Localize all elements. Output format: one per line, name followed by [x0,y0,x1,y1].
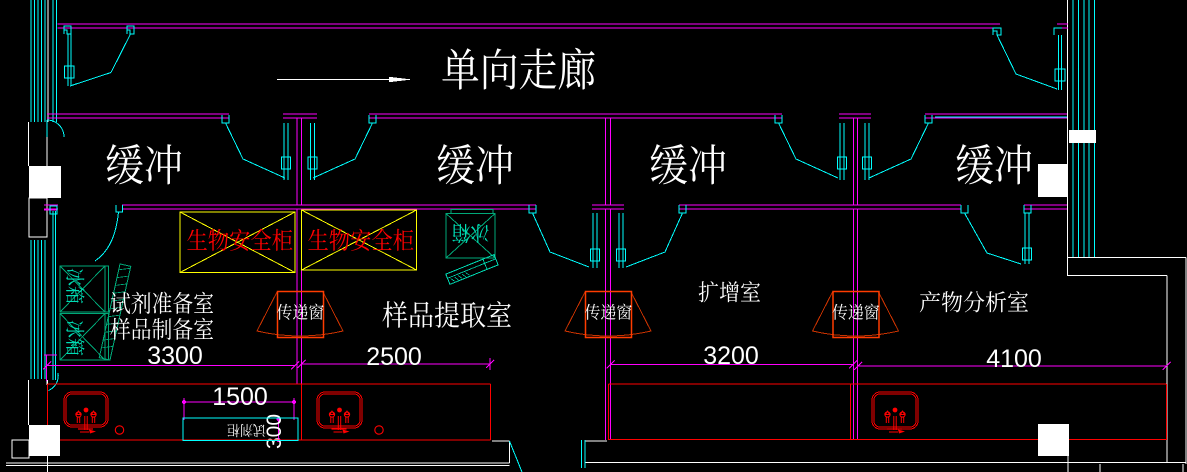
svg-text:4100: 4100 [986,345,1042,373]
svg-text:3300: 3300 [147,342,203,370]
svg-text:2500: 2500 [366,343,422,371]
svg-text:300: 300 [263,414,286,449]
svg-text:1500: 1500 [212,383,268,411]
svg-text:3200: 3200 [703,342,759,370]
